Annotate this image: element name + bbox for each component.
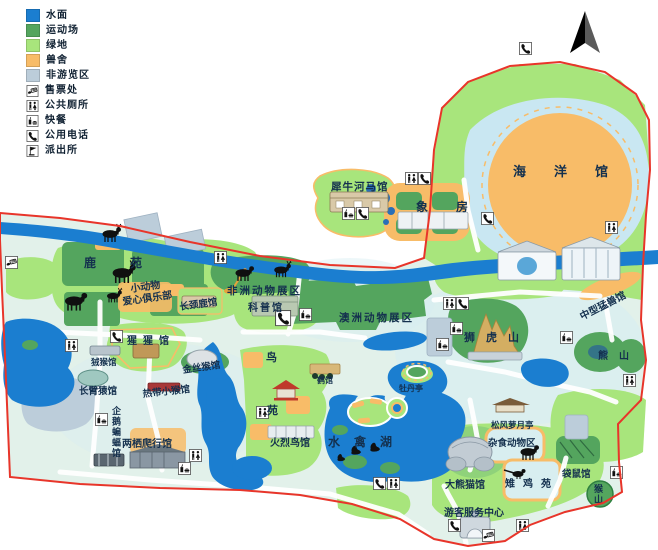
phone-icon bbox=[373, 477, 385, 489]
legend-label: 运动场 bbox=[46, 23, 79, 38]
legend-item-ticket: 售票处 bbox=[26, 83, 90, 98]
flamingo-hall-building bbox=[268, 426, 314, 438]
legend-label: 售票处 bbox=[45, 83, 78, 98]
legend-label: 派出所 bbox=[45, 143, 78, 158]
legend-item-police: 派出所 bbox=[26, 143, 90, 158]
phone-icon bbox=[519, 42, 531, 54]
fastfood-icon bbox=[450, 322, 462, 334]
waterfowl-lake-label: 水禽湖 bbox=[328, 434, 406, 449]
police-icon bbox=[26, 145, 39, 157]
legend-swatch bbox=[26, 24, 40, 37]
legend-item-swatch-3: 兽舍 bbox=[26, 53, 90, 68]
crane-hall-label: 鹤馆 bbox=[317, 375, 333, 385]
legend-item-swatch-0: 水面 bbox=[26, 8, 90, 23]
toilet-icon bbox=[189, 449, 201, 461]
ticket-icon bbox=[26, 85, 39, 97]
songfeng-luoyue-pavilion-label: 松风萝月亭 bbox=[491, 420, 534, 431]
deer-garden-label: 鹿苑 bbox=[84, 255, 176, 270]
panda-hall-building bbox=[446, 437, 494, 471]
legend-item-swatch-2: 绿地 bbox=[26, 38, 90, 53]
legend-item-swatch-4: 非游览区 bbox=[26, 68, 90, 83]
rhino-hippo-hall-label: 犀牛河马馆 bbox=[330, 180, 389, 193]
phone-icon bbox=[110, 330, 122, 342]
gibbon-dome bbox=[78, 370, 108, 386]
fastfood-icon bbox=[26, 115, 39, 127]
phone-icon bbox=[481, 212, 493, 224]
lion-tiger-hill-label: 狮虎山 bbox=[463, 330, 530, 344]
visitor-service-center-label: 游客服务中心 bbox=[444, 506, 504, 519]
legend-item-toilet: 公共厕所 bbox=[26, 98, 90, 113]
penguin-bat-hall-label: 企鹅蝙蝠馆 bbox=[111, 405, 122, 459]
kangaroo-hall-label: 袋鼠馆 bbox=[561, 468, 591, 480]
legend-label: 公共厕所 bbox=[45, 98, 89, 113]
phone-icon bbox=[456, 297, 468, 309]
legend-label: 非游览区 bbox=[46, 68, 90, 83]
fastfood-icon bbox=[178, 462, 190, 474]
legend-swatch bbox=[26, 54, 40, 67]
legend-swatch bbox=[26, 39, 40, 52]
fastfood-icon bbox=[436, 338, 448, 350]
legend-item-fastfood: 快餐 bbox=[26, 113, 90, 128]
map-canvas: 海洋馆犀牛河马馆象房鹿苑小动物爱心俱乐部长颈鹿馆非洲动物展区科普馆澳洲动物展区狮… bbox=[0, 0, 658, 550]
omnivore-zone-label: 杂食动物区 bbox=[488, 437, 536, 449]
marmoset-hall-label: 狨猴馆 bbox=[90, 357, 117, 368]
legend-item-swatch-1: 运动场 bbox=[26, 23, 90, 38]
fastfood-icon bbox=[299, 308, 311, 320]
toilet-icon bbox=[605, 221, 617, 233]
orangutan-hall-label: 猩猩馆 bbox=[126, 334, 175, 347]
phone-icon bbox=[26, 130, 39, 142]
legend-label: 公用电话 bbox=[45, 128, 89, 143]
toilet-icon bbox=[387, 477, 399, 489]
flamingo-hall-label: 火烈鸟馆 bbox=[270, 436, 310, 449]
phone-icon bbox=[356, 207, 368, 219]
gibbon-hall-label: 长臂猿馆 bbox=[79, 385, 118, 397]
amphibian-reptile-hall-label: 两栖爬行馆 bbox=[122, 437, 172, 450]
pheasant-garden-label: 雉鸡苑 bbox=[505, 477, 559, 490]
ticket-icon bbox=[482, 529, 494, 541]
fastfood-icon bbox=[560, 331, 572, 343]
science-hall-label: 科普馆 bbox=[248, 301, 284, 314]
toilet-icon bbox=[214, 251, 226, 263]
north-arrow bbox=[570, 11, 600, 53]
elephant-building bbox=[398, 212, 468, 229]
peony-pavilion-label: 牡丹亭 bbox=[399, 383, 423, 393]
marmoset-building bbox=[90, 346, 120, 355]
toilet-icon bbox=[405, 172, 417, 184]
toilet-icon bbox=[65, 339, 77, 351]
legend-swatch bbox=[26, 9, 40, 22]
australia-animal-zone-label: 澳洲动物展区 bbox=[339, 311, 414, 324]
legend-label: 兽舍 bbox=[46, 53, 68, 68]
crane-hall-building bbox=[310, 364, 340, 374]
fastfood-icon bbox=[95, 413, 107, 425]
giant-panda-hall-label: 大熊猫馆 bbox=[445, 478, 485, 491]
toilet-icon bbox=[623, 374, 635, 386]
toilet-icon bbox=[26, 100, 39, 112]
ocean-hall-circle bbox=[488, 113, 632, 257]
legend-label: 绿地 bbox=[46, 38, 68, 53]
fastfood-icon bbox=[342, 207, 354, 219]
toilet-icon bbox=[443, 297, 455, 309]
africa-animal-zone-label: 非洲动物展区 bbox=[227, 284, 302, 297]
zoo-guide-map: 海洋馆犀牛河马馆象房鹿苑小动物爱心俱乐部长颈鹿馆非洲动物展区科普馆澳洲动物展区狮… bbox=[0, 0, 658, 550]
bird-garden-char2-label: 苑 bbox=[266, 403, 278, 417]
legend-label: 快餐 bbox=[45, 113, 67, 128]
bird-garden-char1-label: 鸟 bbox=[266, 350, 277, 364]
ocean-hall-label: 海洋馆 bbox=[513, 164, 636, 180]
phone-icon bbox=[448, 519, 460, 531]
legend: 水面运动场绿地兽舍非游览区售票处公共厕所快餐公用电话派出所 bbox=[26, 8, 90, 158]
phone-icon bbox=[418, 172, 430, 184]
ticket-icon bbox=[5, 256, 17, 268]
legend-swatch bbox=[26, 69, 40, 82]
legend-item-phone: 公用电话 bbox=[26, 128, 90, 143]
bear-hill-label: 熊山 bbox=[598, 349, 640, 362]
legend-label: 水面 bbox=[46, 8, 68, 23]
elephant-house-label: 象房 bbox=[416, 199, 496, 214]
